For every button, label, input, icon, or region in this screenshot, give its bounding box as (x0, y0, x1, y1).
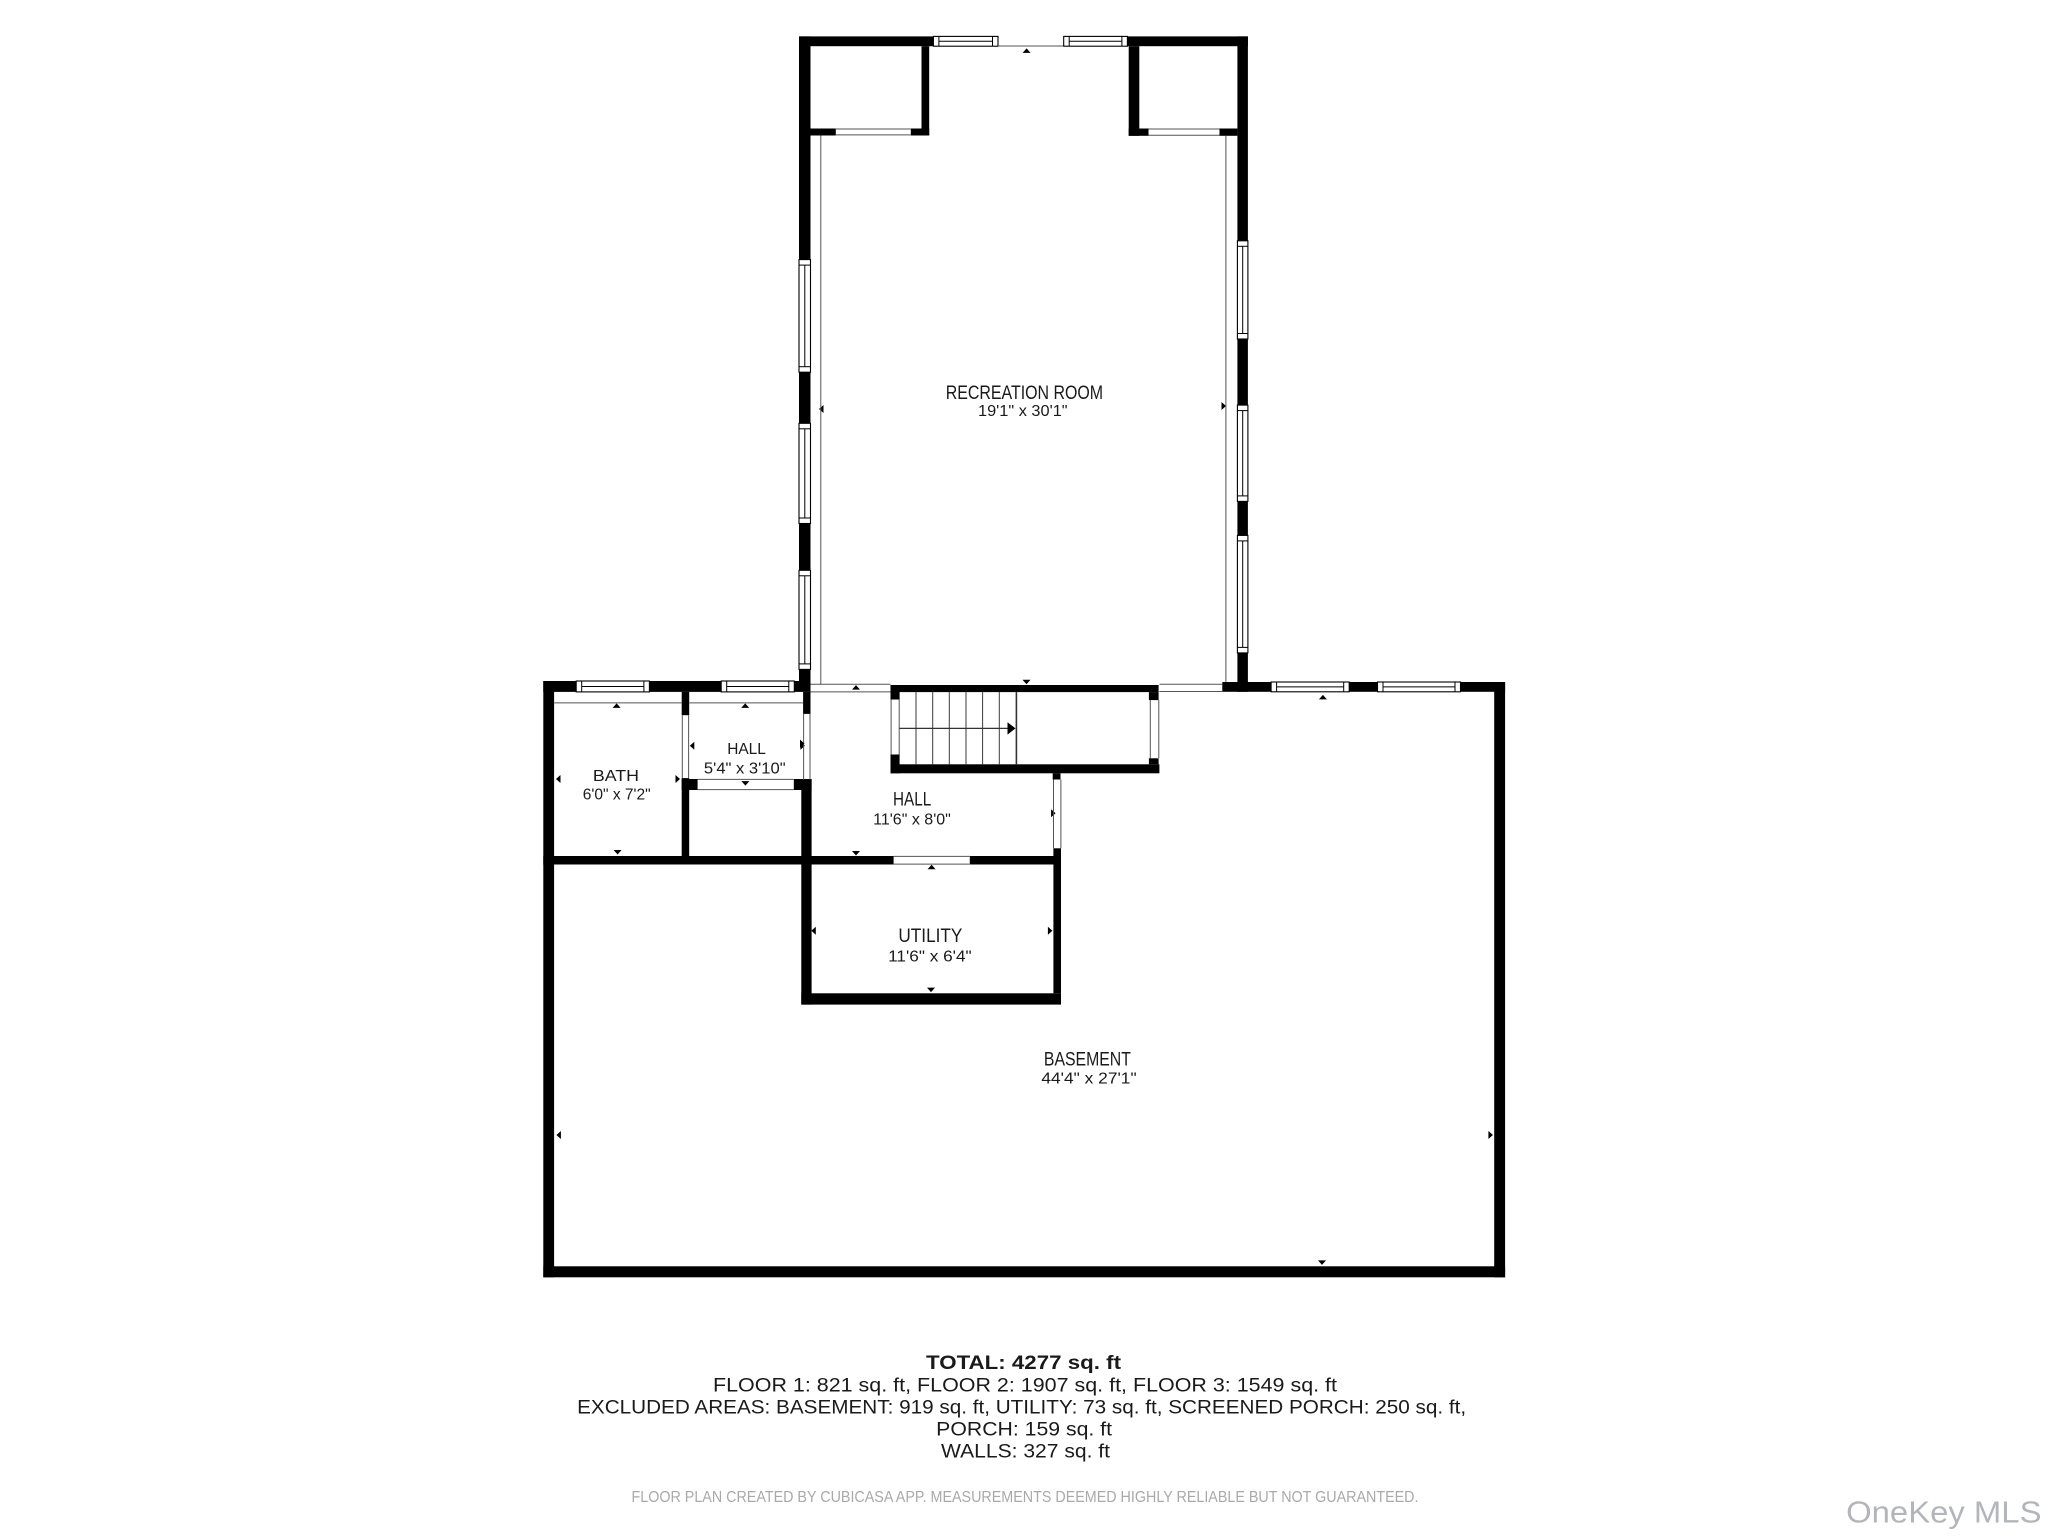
svg-text:PORCH: 159 sq. ft: PORCH: 159 sq. ft (936, 1419, 1113, 1440)
svg-text:HALL: HALL (727, 741, 766, 758)
svg-text:6'0" x 7'2": 6'0" x 7'2" (583, 787, 651, 804)
svg-text:EXCLUDED AREAS: BASEMENT: 919: EXCLUDED AREAS: BASEMENT: 919 sq. ft, UT… (577, 1397, 1466, 1418)
svg-text:11'6" x 8'0": 11'6" x 8'0" (873, 811, 951, 828)
svg-text:TOTAL: 4277 sq. ft: TOTAL: 4277 sq. ft (926, 1353, 1122, 1374)
svg-text:44'4" x 27'1": 44'4" x 27'1" (1041, 1071, 1136, 1088)
svg-text:UTILITY: UTILITY (898, 926, 962, 947)
svg-text:11'6" x 6'4": 11'6" x 6'4" (888, 948, 972, 965)
svg-text:BATH: BATH (593, 768, 639, 785)
svg-text:5'4" x 3'10": 5'4" x 3'10" (704, 761, 786, 778)
svg-text:FLOOR 1: 821 sq. ft, FLOOR 2:: FLOOR 1: 821 sq. ft, FLOOR 2: 1907 sq. f… (713, 1375, 1338, 1396)
svg-text:FLOOR PLAN CREATED BY CUBICASA: FLOOR PLAN CREATED BY CUBICASA APP. MEAS… (632, 1489, 1419, 1506)
svg-text:RECREATION ROOM: RECREATION ROOM (946, 383, 1103, 404)
svg-text:BASEMENT: BASEMENT (1044, 1050, 1131, 1071)
svg-text:HALL: HALL (893, 790, 931, 811)
svg-text:19'1" x 30'1": 19'1" x 30'1" (978, 403, 1068, 420)
svg-text:WALLS: 327 sq. ft: WALLS: 327 sq. ft (941, 1441, 1111, 1462)
svg-text:OneKey MLS: OneKey MLS (1846, 1495, 2041, 1530)
